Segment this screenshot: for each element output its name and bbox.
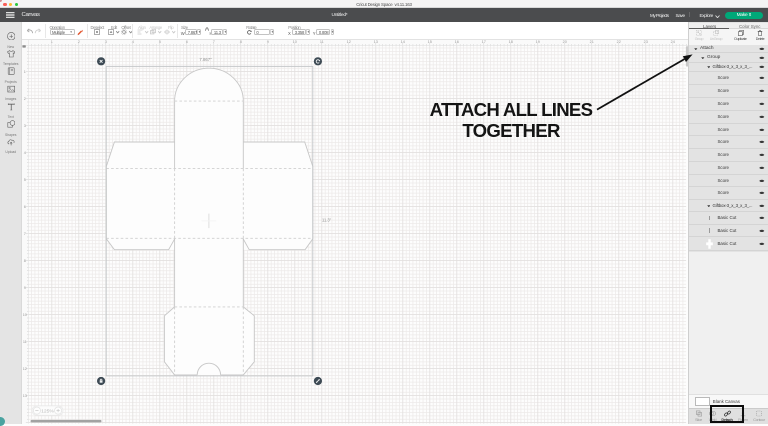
- svg-text:5: 5: [158, 41, 160, 45]
- svg-text:15: 15: [427, 41, 431, 45]
- svg-text:125%: 125%: [41, 409, 54, 415]
- svg-text:11: 11: [22, 340, 26, 344]
- svg-text:4: 4: [23, 151, 25, 155]
- svg-text:8: 8: [239, 41, 241, 45]
- svg-text:19: 19: [535, 41, 539, 45]
- svg-text:24: 24: [670, 41, 674, 45]
- svg-text:8: 8: [23, 259, 25, 263]
- svg-text:1: 1: [23, 70, 25, 74]
- svg-text:22: 22: [616, 41, 620, 45]
- svg-text:12: 12: [346, 41, 350, 45]
- svg-text:9: 9: [266, 41, 268, 45]
- svg-text:12: 12: [22, 367, 26, 371]
- svg-text:9: 9: [23, 286, 25, 290]
- svg-text:7: 7: [212, 41, 214, 45]
- svg-text:7: 7: [23, 232, 25, 236]
- svg-text:13: 13: [373, 41, 377, 45]
- svg-text:6: 6: [185, 41, 187, 45]
- svg-text:2: 2: [23, 97, 25, 101]
- svg-text:20: 20: [562, 41, 566, 45]
- svg-text:11.3": 11.3": [322, 218, 332, 223]
- svg-text:3: 3: [104, 41, 106, 45]
- svg-text:18: 18: [508, 41, 512, 45]
- svg-text:3: 3: [23, 124, 25, 128]
- svg-text:5: 5: [23, 178, 25, 182]
- svg-text:4: 4: [131, 41, 133, 45]
- svg-text:10: 10: [292, 41, 296, 45]
- svg-text:23: 23: [643, 41, 647, 45]
- svg-text:16: 16: [454, 41, 458, 45]
- svg-text:13: 13: [22, 394, 26, 398]
- svg-text:6: 6: [23, 205, 25, 209]
- svg-text:7.867": 7.867": [199, 57, 212, 62]
- svg-text:10: 10: [22, 313, 26, 317]
- svg-text:1: 1: [50, 41, 52, 45]
- svg-text:17: 17: [481, 41, 485, 45]
- svg-text:21: 21: [589, 41, 593, 45]
- svg-text:2: 2: [77, 41, 79, 45]
- svg-text:14: 14: [400, 41, 404, 45]
- svg-text:11: 11: [319, 41, 323, 45]
